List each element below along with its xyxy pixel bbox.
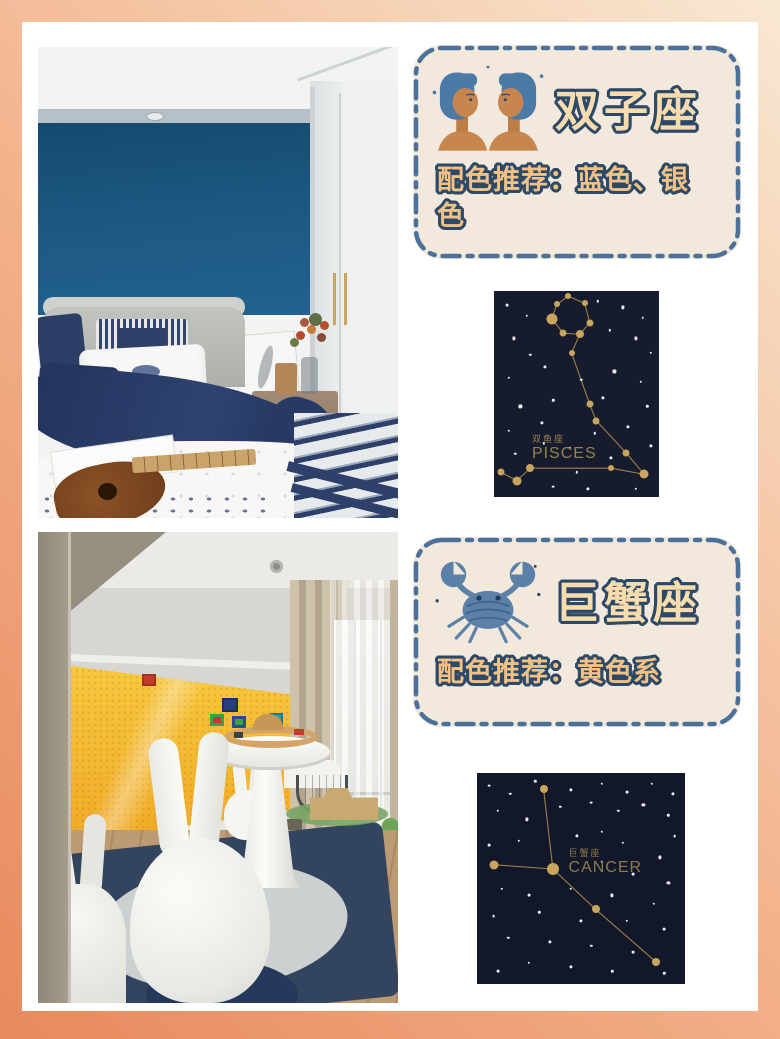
gemini-card-title: 双子座 xyxy=(555,75,702,139)
background-star xyxy=(506,304,509,307)
playroom-magnet-red xyxy=(142,674,156,686)
background-star xyxy=(528,894,531,897)
background-star xyxy=(663,928,666,931)
constellation-star xyxy=(565,293,571,299)
constellation-star xyxy=(592,905,600,913)
poster-frame: 双子座 配色推荐：蓝色、银色 双鱼座PISCES xyxy=(0,0,780,1039)
zodiac-card-gemini: 双子座 配色推荐：蓝色、银色 xyxy=(413,45,741,259)
background-star xyxy=(492,915,495,918)
constellation-star xyxy=(540,785,548,793)
playroom-left-wall-edge xyxy=(38,532,68,1003)
constellation-star xyxy=(513,476,522,485)
cancer-color-recommendation: 配色推荐：黄色系 xyxy=(437,655,727,691)
constellation-star xyxy=(546,313,557,324)
bedroom-wardrobe-handle xyxy=(333,273,336,325)
cancer-constellation-lines xyxy=(477,773,685,984)
playroom-white-trim xyxy=(68,654,296,670)
constellation-star xyxy=(586,401,593,408)
constellation-star xyxy=(547,863,559,875)
gemini-card-header: 双子座 xyxy=(413,45,741,153)
pisces-constellation-lines xyxy=(494,291,659,497)
background-star xyxy=(590,801,593,804)
blue-bedroom-photo xyxy=(38,47,398,518)
playroom-toy-dark xyxy=(234,732,243,738)
pisces-constellation-image: 双鱼座PISCES xyxy=(494,291,659,497)
playroom-spotlight xyxy=(270,560,283,573)
zodiac-card-cancer: 巨蟹座 配色推荐：黄色系 xyxy=(413,537,741,727)
background-star xyxy=(673,835,676,838)
bedroom-wardrobe-handle xyxy=(344,273,347,325)
constellation-star xyxy=(582,300,588,306)
playroom-curtain-edge xyxy=(390,580,398,840)
bedroom-flower-bouquet xyxy=(296,331,305,340)
constellation-star xyxy=(490,860,499,869)
gemini-twins-icon xyxy=(429,61,547,153)
bedroom-wood-canister xyxy=(275,363,297,394)
bedroom-glass-vase xyxy=(301,357,318,394)
constellation-star xyxy=(593,417,600,424)
constellation-star xyxy=(576,330,584,338)
background-star xyxy=(625,791,628,794)
cancer-crab-icon xyxy=(429,553,547,645)
playroom-magnet-green-red xyxy=(210,714,224,726)
constellation-star xyxy=(623,449,630,456)
bedroom-recessed-spotlight xyxy=(146,112,164,121)
playroom-magnet-navy xyxy=(222,698,238,712)
constellation-star xyxy=(554,301,560,307)
content-canvas: 双子座 配色推荐：蓝色、银色 双鱼座PISCES xyxy=(22,22,758,1011)
constellation-star xyxy=(640,470,649,479)
background-star xyxy=(632,951,635,954)
cancer-constellation-image: 巨蟹座CANCER xyxy=(477,773,685,984)
constellation-star xyxy=(608,465,614,471)
playroom-wall-edge-highlight xyxy=(68,532,71,1003)
playroom-magnet-blue-green xyxy=(232,716,246,728)
constellation-star xyxy=(560,330,567,337)
cancer-card-title: 巨蟹座 xyxy=(555,567,702,631)
bedroom-guitar-soundhole xyxy=(98,483,117,500)
constellation-star xyxy=(497,469,504,476)
playroom-toy-red xyxy=(294,729,304,735)
background-star xyxy=(488,843,491,846)
background-star xyxy=(488,784,491,787)
bedroom-blue-accent-wall xyxy=(38,123,310,315)
yellow-playroom-photo xyxy=(38,532,398,1003)
gemini-color-recommendation: 配色推荐：蓝色、银色 xyxy=(437,163,705,234)
bedroom-ceiling-cove-strip xyxy=(38,109,310,123)
cancer-label: 巨蟹座CANCER xyxy=(569,849,643,876)
constellation-star xyxy=(652,958,660,966)
constellation-star xyxy=(586,319,593,326)
constellation-star xyxy=(526,464,534,472)
constellation-star xyxy=(569,350,575,356)
bedroom-ceiling-cove-edge xyxy=(297,47,398,82)
cancer-card-header: 巨蟹座 xyxy=(413,537,741,645)
background-star xyxy=(552,485,555,488)
background-star xyxy=(496,970,499,973)
pisces-label: 双鱼座PISCES xyxy=(532,435,597,462)
